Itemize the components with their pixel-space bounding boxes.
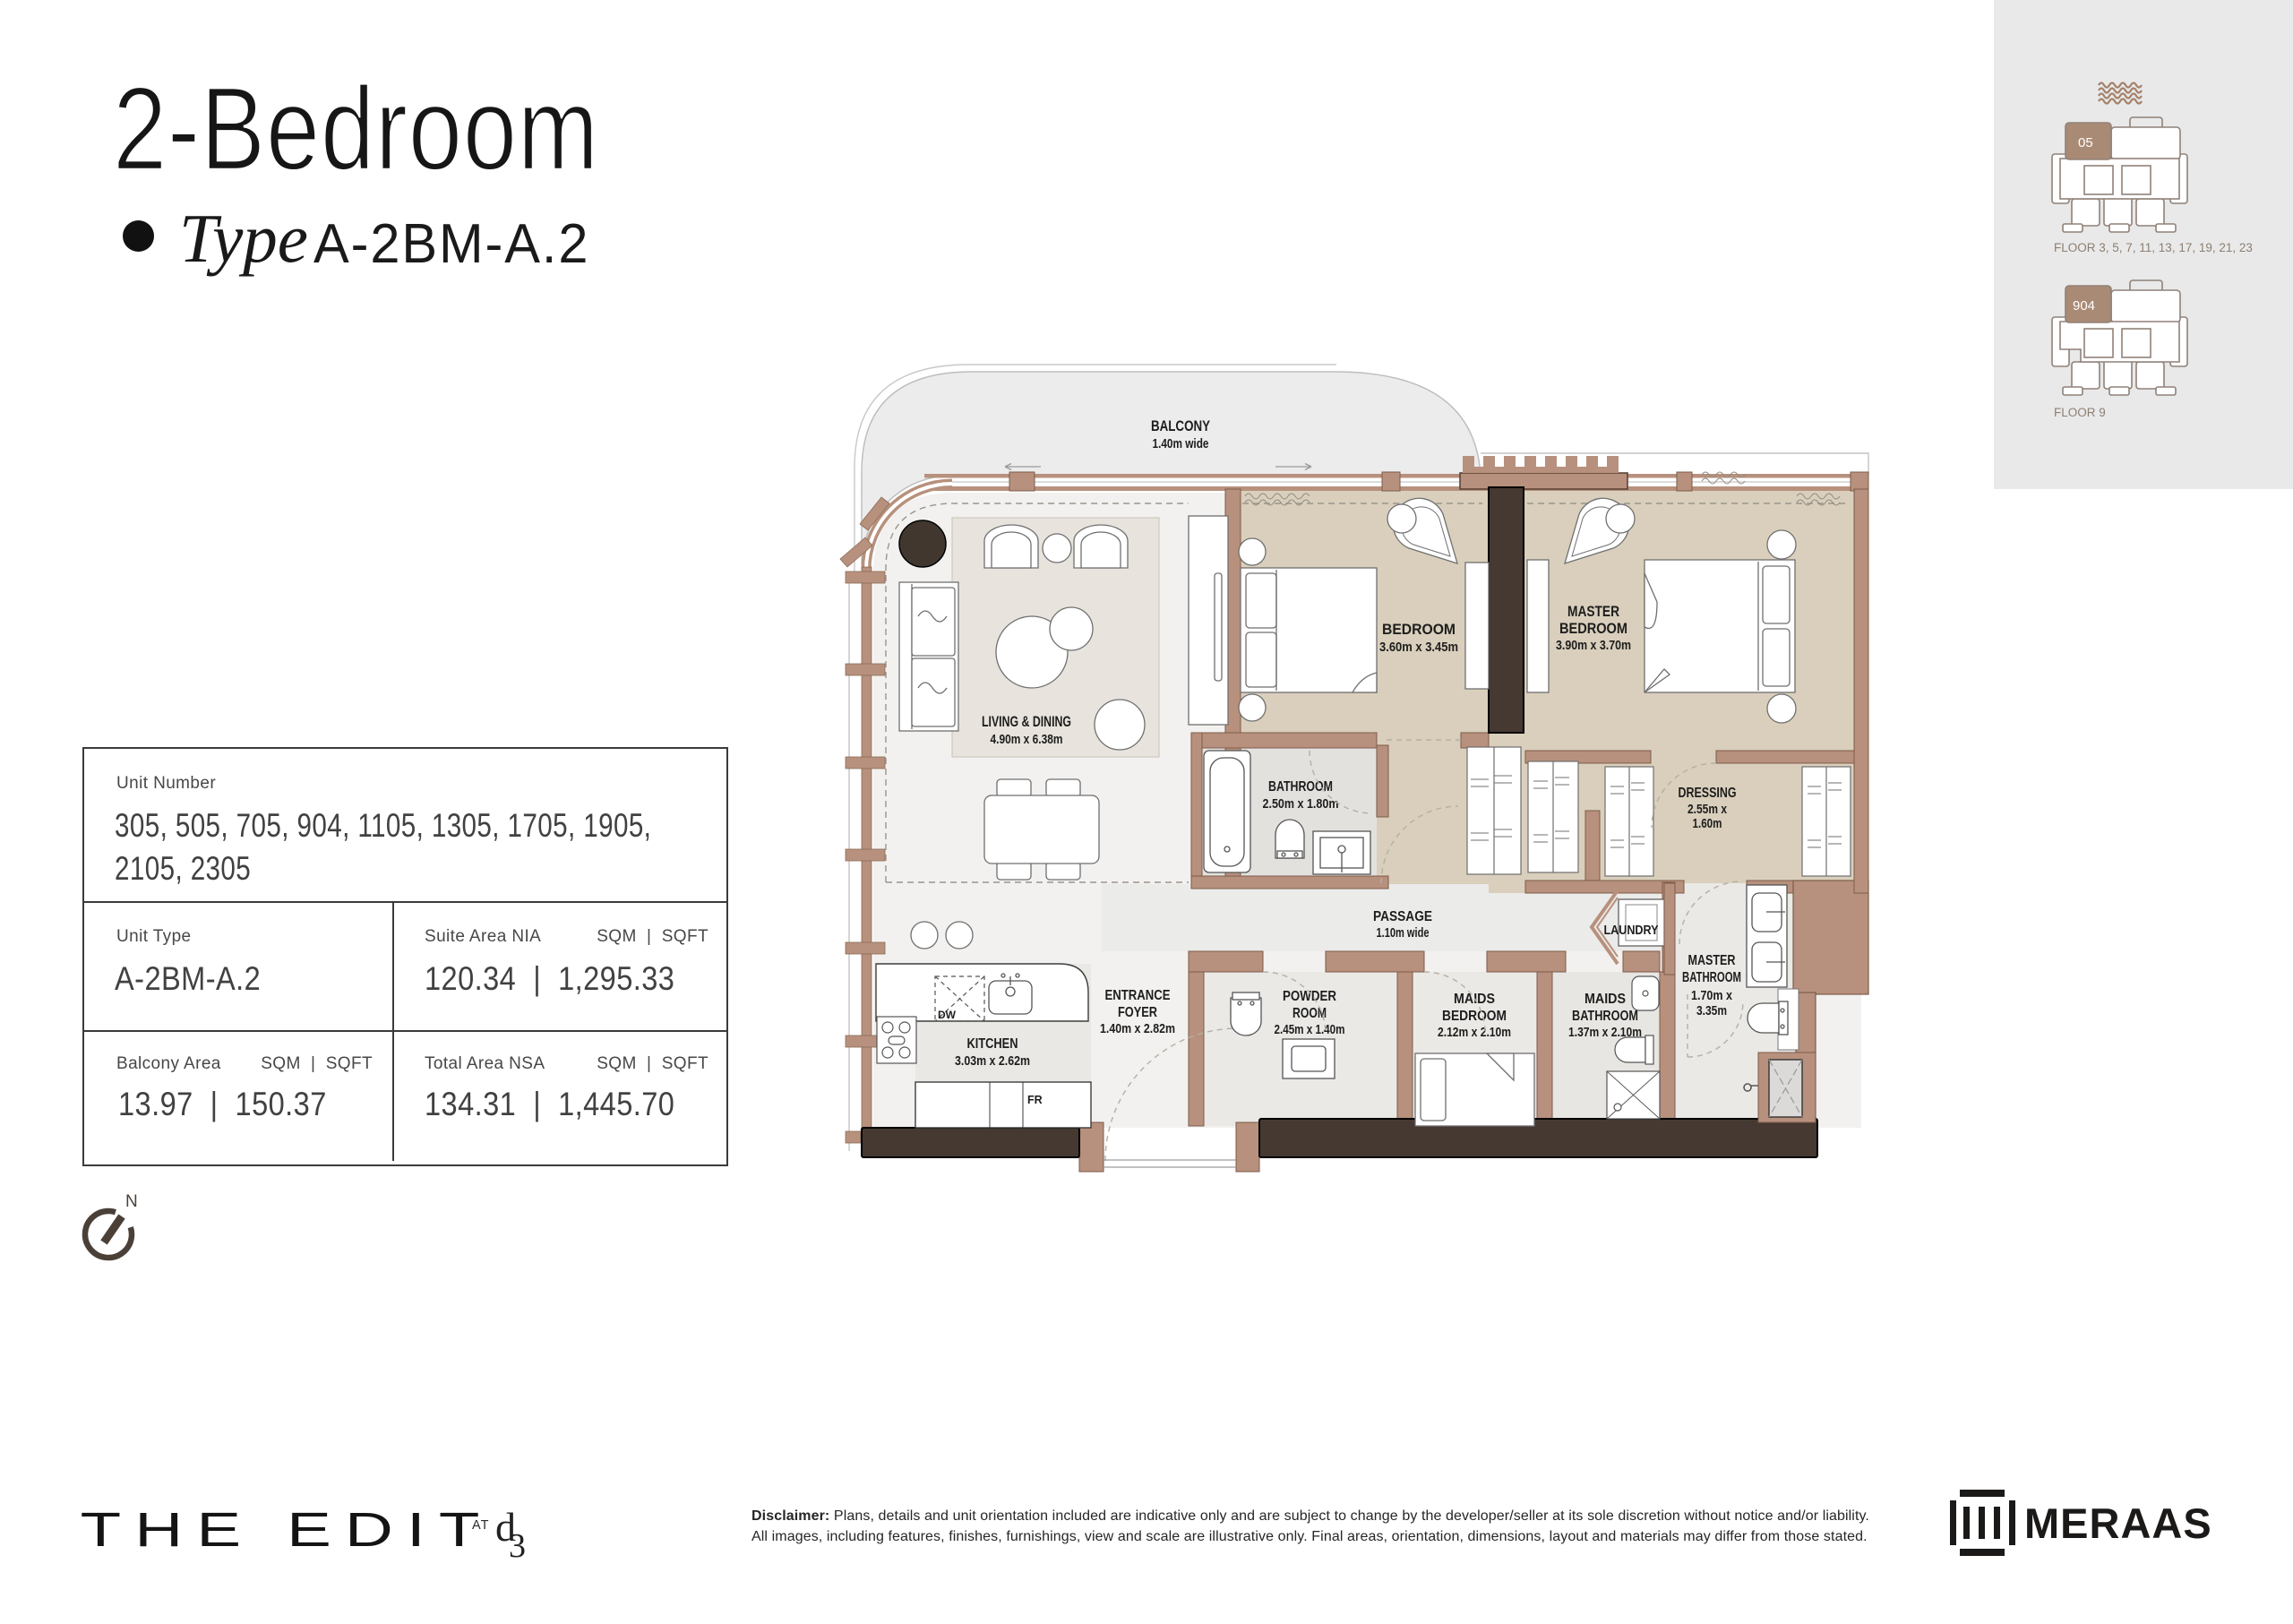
svg-text:FOYER: FOYER: [1118, 1005, 1157, 1020]
svg-text:1.60m: 1.60m: [1693, 817, 1722, 831]
svg-text:THE EDIT: THE EDIT: [81, 1502, 494, 1557]
svg-text:LAUNDRY: LAUNDRY: [1604, 923, 1659, 938]
svg-text:2.55m x: 2.55m x: [1688, 803, 1727, 817]
svg-text:3.03m x 2.62m: 3.03m x 2.62m: [955, 1054, 1030, 1069]
svg-text:2.12m x 2.10m: 2.12m x 2.10m: [1438, 1026, 1511, 1040]
svg-text:3.60m x 3.45m: 3.60m x 3.45m: [1379, 640, 1458, 655]
svg-text:FR: FR: [1027, 1094, 1043, 1106]
svg-text:4.90m x 6.38m: 4.90m x 6.38m: [991, 732, 1063, 747]
svg-text:1.40m wide: 1.40m wide: [1153, 436, 1209, 451]
svg-text:2.50m x 1.80m: 2.50m x 1.80m: [1263, 797, 1339, 812]
svg-text:DW: DW: [938, 1009, 957, 1021]
svg-text:1.40m x 2.82m: 1.40m x 2.82m: [1100, 1022, 1175, 1036]
svg-text:FLOOR 3, 5, 7, 11, 13, 17, 19,: FLOOR 3, 5, 7, 11, 13, 17, 19, 21, 23: [2054, 241, 2253, 254]
svg-text:MASTER: MASTER: [1688, 953, 1736, 968]
svg-text:BATHROOM: BATHROOM: [1268, 779, 1333, 795]
svg-text:ROOM: ROOM: [1292, 1006, 1327, 1021]
svg-text:BEDROOM: BEDROOM: [1559, 620, 1627, 637]
svg-text:BATHROOM: BATHROOM: [1572, 1009, 1638, 1024]
svg-text:904: 904: [2073, 298, 2095, 314]
svg-text:ENTRANCE: ENTRANCE: [1105, 988, 1171, 1003]
svg-text:N: N: [125, 1192, 138, 1211]
svg-text:PASSAGE: PASSAGE: [1373, 909, 1432, 924]
svg-text:FLOOR 9: FLOOR 9: [2054, 406, 2106, 419]
svg-text:MAIDS: MAIDS: [1584, 992, 1626, 1007]
svg-text:3.35m: 3.35m: [1696, 1004, 1727, 1018]
svg-text:POWDER: POWDER: [1283, 989, 1336, 1004]
svg-text:BATHROOM: BATHROOM: [1682, 970, 1741, 985]
svg-text:1.70m x: 1.70m x: [1691, 989, 1732, 1003]
svg-text:3.90m x 3.70m: 3.90m x 3.70m: [1556, 638, 1631, 653]
svg-text:BALCONY: BALCONY: [1151, 418, 1210, 434]
svg-text:LIVING & DINING: LIVING & DINING: [982, 714, 1071, 730]
svg-text:AT: AT: [472, 1518, 489, 1533]
svg-text:1.10m wide: 1.10m wide: [1377, 926, 1430, 941]
svg-text:3: 3: [509, 1527, 526, 1565]
svg-text:BEDROOM: BEDROOM: [1382, 621, 1456, 638]
svg-text:KITCHEN: KITCHEN: [967, 1036, 1018, 1052]
svg-text:MASTER: MASTER: [1567, 603, 1619, 620]
svg-text:DRESSING: DRESSING: [1679, 786, 1737, 801]
svg-text:BEDROOM: BEDROOM: [1442, 1009, 1507, 1024]
svg-text:05: 05: [2078, 135, 2093, 150]
svg-text:2.45m x 1.40m: 2.45m x 1.40m: [1275, 1023, 1345, 1037]
svg-text:MERAAS: MERAAS: [2024, 1499, 2212, 1547]
